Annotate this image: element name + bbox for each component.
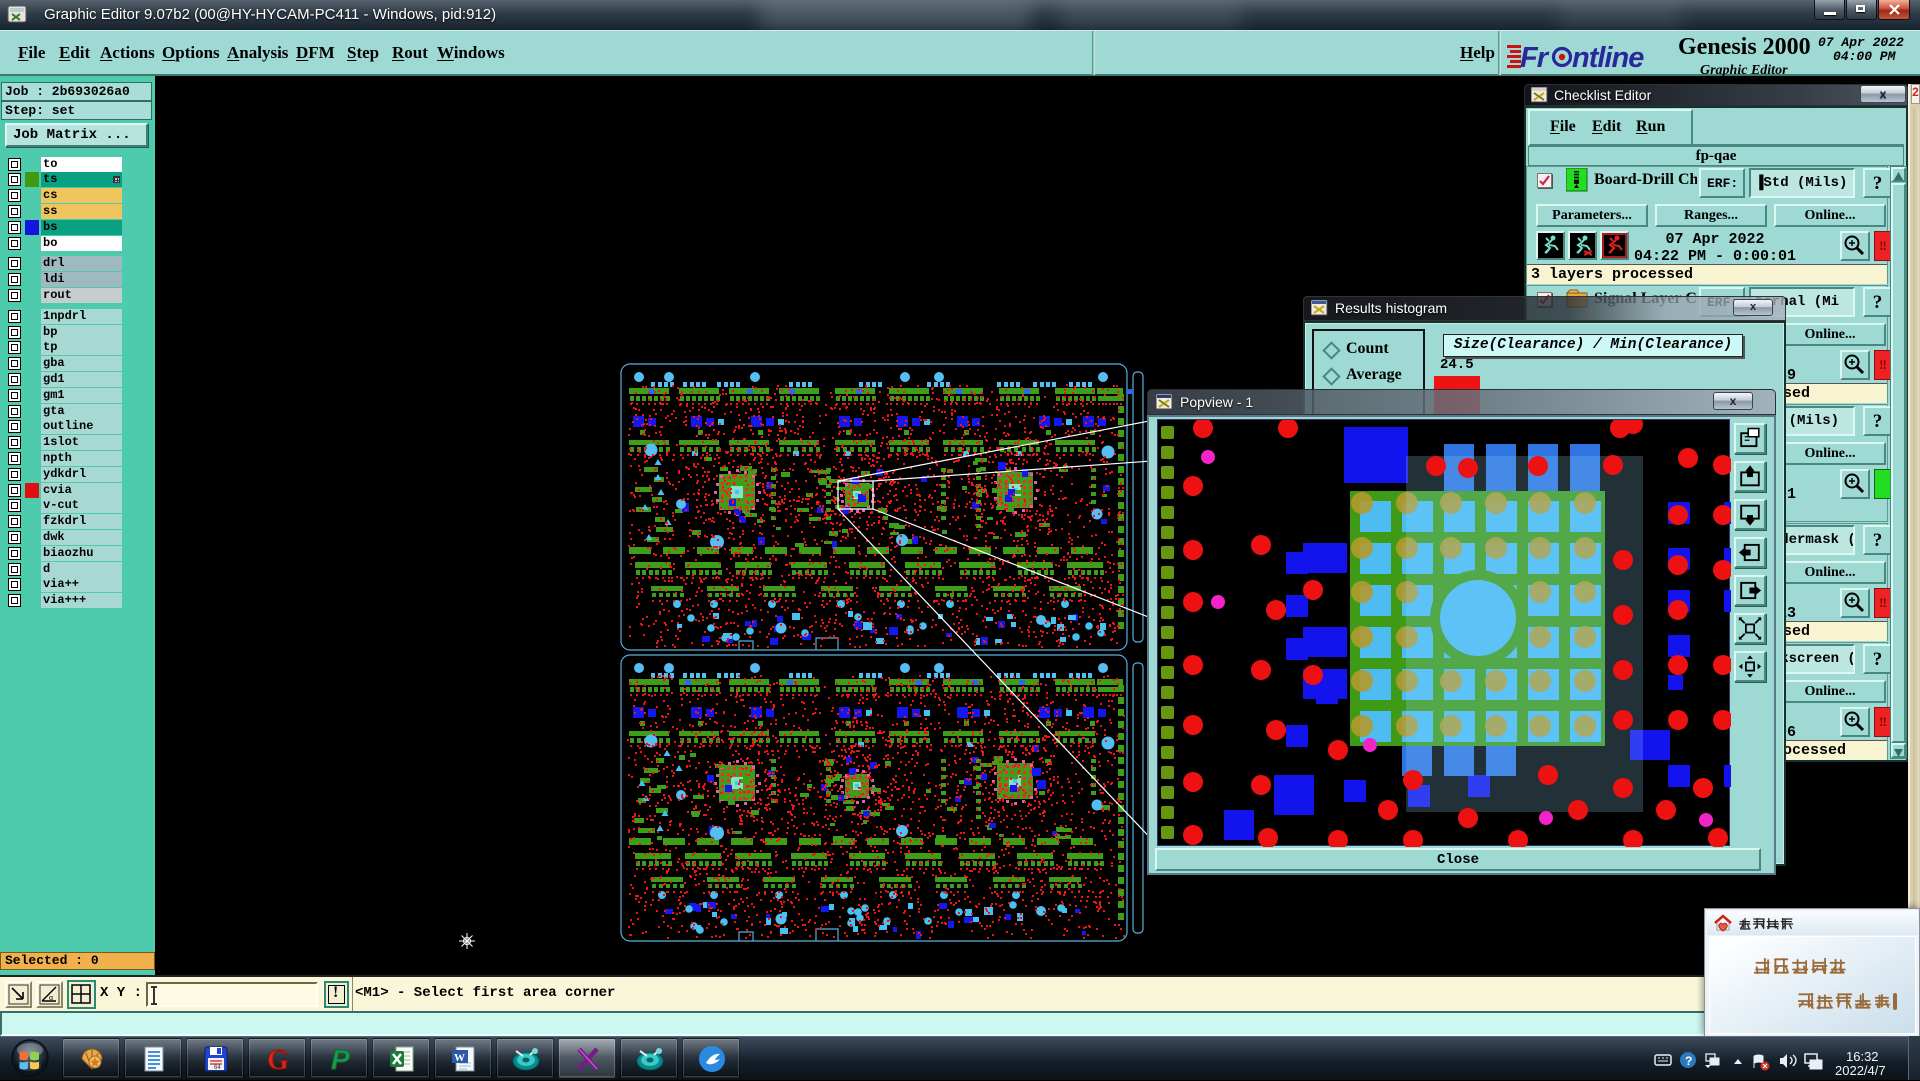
svg-text:P: P (331, 1044, 350, 1075)
svg-text:Fr: Fr (1520, 42, 1550, 74)
svg-text:?: ? (1685, 1054, 1692, 1068)
svg-text:ntline: ntline (1572, 42, 1644, 74)
svg-text:G: G (267, 1045, 289, 1075)
svg-text:2022/4/7: 2022/4/7 (1835, 1063, 1886, 1076)
svg-text:16:32: 16:32 (1846, 1049, 1879, 1064)
svg-text:W: W (454, 1052, 465, 1064)
svg-text:64: 64 (214, 1065, 221, 1071)
svg-text:α: α (49, 995, 53, 1002)
